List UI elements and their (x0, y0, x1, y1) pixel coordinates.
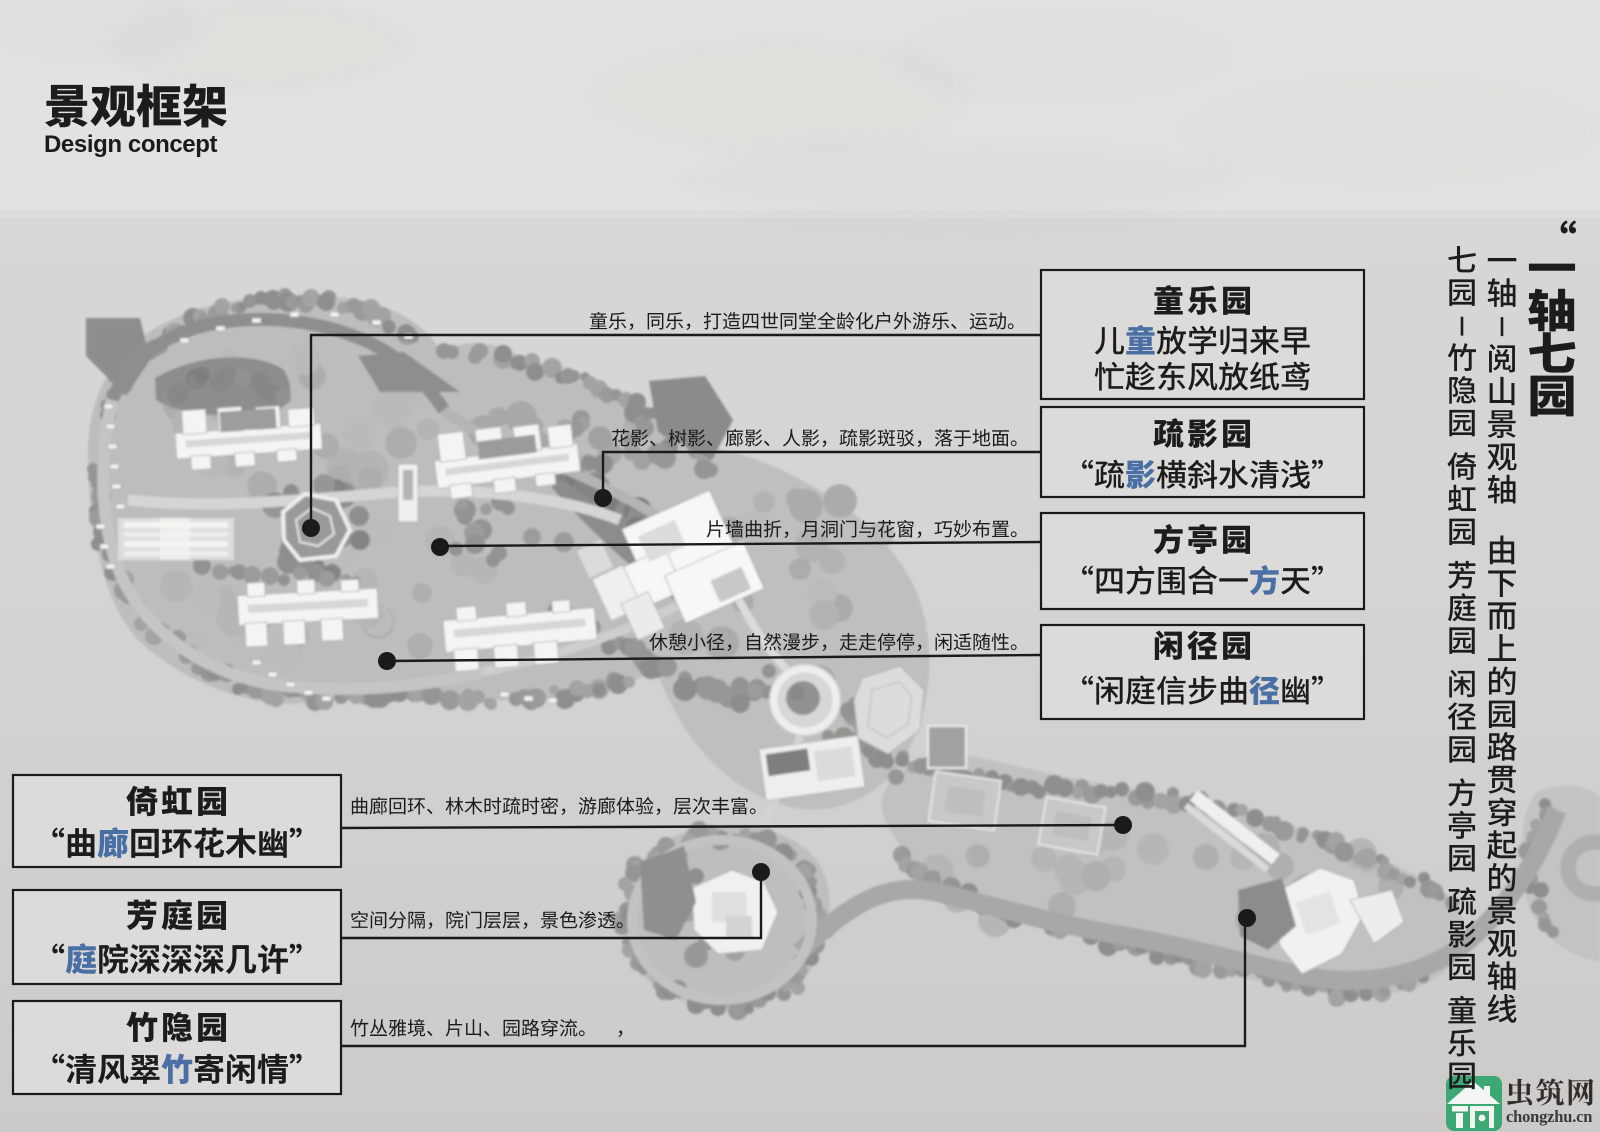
svg-text:chongzhu.cn: chongzhu.cn (1506, 1107, 1592, 1126)
svg-text:Design concept: Design concept (44, 131, 218, 158)
